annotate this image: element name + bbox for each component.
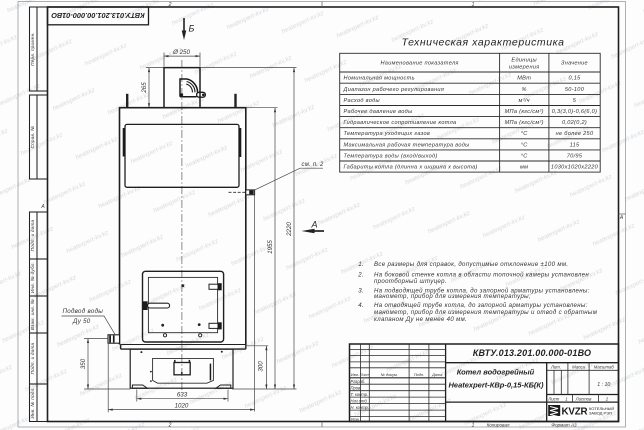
svg-text:Техническая характеристика: Техническая характеристика [402, 37, 565, 49]
svg-text:КВТУ.013.201.00.000-01ВО: КВТУ.013.201.00.000-01ВО [473, 348, 592, 358]
svg-text:Единицы: Единицы [511, 58, 537, 64]
svg-text:Подп. и дата: Подп. и дата [30, 342, 35, 374]
svg-text:Лист: Лист [359, 372, 371, 377]
svg-text:А: А [310, 219, 317, 229]
svg-text:проотборный штуцер.: проотборный штуцер. [374, 278, 447, 285]
svg-text:Подп. и дата: Подп. и дата [30, 219, 35, 251]
svg-text:МПа (кгс/см²): МПа (кгс/см²) [505, 109, 544, 115]
svg-text:Лист: Лист [547, 396, 559, 401]
svg-text:ЗАВОД РЭП: ЗАВОД РЭП [589, 411, 612, 416]
svg-text:МВт: МВт [517, 76, 531, 82]
svg-text:Дата: Дата [431, 372, 443, 377]
svg-text:Изм.: Изм. [351, 372, 359, 377]
svg-text:Расход воды: Расход воды [344, 98, 380, 104]
svg-text:0,3(3,0)-0,6(6,0): 0,3(3,0)-0,6(6,0) [552, 109, 598, 115]
svg-text:50-100: 50-100 [565, 87, 585, 93]
svg-text:633: 633 [177, 392, 188, 399]
svg-text:2220: 2220 [286, 222, 293, 237]
svg-text:Масштаб: Масштаб [594, 364, 615, 369]
svg-text:А: А [40, 204, 45, 210]
svg-text:1: 1 [472, 2, 475, 8]
svg-text:Номинальная мощность: Номинальная мощность [344, 76, 415, 82]
svg-text:Ду 50: Ду 50 [72, 318, 91, 325]
svg-text:Подвод воды: Подвод воды [63, 308, 104, 315]
svg-text:2.: 2. [357, 271, 364, 278]
svg-text:Ø 250: Ø 250 [172, 49, 190, 56]
svg-text:Габариты котла (длинна х ширин: Габариты котла (длинна х ширина х высота… [344, 165, 478, 171]
svg-text:1030х1020х2220: 1030х1020х2220 [551, 165, 599, 171]
svg-text:Значение: Значение [561, 61, 588, 67]
svg-text:Наименование показателя: Наименование показателя [380, 61, 458, 67]
svg-text:Т. контр.: Т. контр. [351, 392, 369, 397]
svg-text:Утв.: Утв. [351, 417, 360, 422]
svg-text:1020: 1020 [175, 402, 189, 409]
svg-text:350: 350 [80, 358, 87, 369]
svg-text:2: 2 [168, 2, 172, 8]
svg-text:°С: °С [521, 153, 529, 159]
svg-text:Подп.: Подп. [414, 372, 424, 377]
svg-text:°С: °С [521, 131, 529, 137]
svg-text:Пров.: Пров. [351, 386, 362, 391]
svg-text:м³/ч: м³/ч [519, 98, 530, 104]
svg-text:Инв. № дубл.: Инв. № дубл. [30, 262, 35, 293]
svg-text:Котел водогрейный: Котел водогрейный [457, 367, 535, 376]
svg-text:Диапазон рабочего регулировани: Диапазон рабочего регулирования [343, 87, 445, 93]
svg-text:Рабочее давление воды: Рабочее давление воды [344, 109, 413, 115]
svg-text:°С: °С [521, 142, 529, 148]
svg-text:Лит.: Лит. [550, 364, 561, 369]
svg-text:Гидравлическое сопротивление к: Гидравлическое сопротивление котла [344, 120, 457, 126]
svg-text:Н. контр.: Н. контр. [351, 405, 369, 410]
svg-text:Температура уходящих газов: Температура уходящих газов [344, 131, 431, 137]
svg-text:А: А [619, 215, 624, 221]
svg-text:не более 250: не более 250 [556, 131, 594, 137]
svg-text:Разраб.: Разраб. [351, 379, 366, 384]
svg-text:0,15: 0,15 [568, 76, 581, 82]
svg-text:1.: 1. [358, 261, 364, 268]
svg-text:Б: Б [189, 24, 195, 34]
svg-text:0,02(0,2): 0,02(0,2) [562, 120, 587, 126]
svg-text:мм: мм [520, 165, 528, 171]
svg-text:измерения: измерения [509, 65, 540, 71]
svg-text:клапаном Ду не менее 40 мм.: клапаном Ду не менее 40 мм. [374, 316, 467, 323]
svg-text:Инв. № подл.: Инв. № подл. [30, 387, 35, 419]
svg-text:МПа (кгс/см²): МПа (кгс/см²) [505, 120, 544, 126]
svg-text:115: 115 [570, 142, 580, 148]
svg-text:Максимальная рабочая температу: Максимальная рабочая температура воды [344, 142, 470, 148]
svg-text:см. п. 2: см. п. 2 [302, 162, 324, 168]
svg-text:Формат А3: Формат А3 [551, 422, 577, 427]
svg-text:3.: 3. [358, 287, 364, 294]
svg-text:%: % [522, 87, 527, 93]
svg-text:4.: 4. [358, 302, 364, 309]
svg-text:300: 300 [258, 361, 265, 372]
svg-text:KVZR: KVZR [562, 407, 588, 418]
svg-text:2: 2 [168, 423, 172, 429]
svg-text:265: 265 [141, 82, 148, 94]
svg-text:Масса: Масса [572, 364, 585, 369]
svg-text:манометр, прибор для измерения: манометр, прибор для измерения температу… [374, 293, 531, 300]
svg-text:Нач.отд.: Нач.отд. [351, 399, 368, 404]
svg-text:1: 1 [472, 423, 475, 429]
svg-text:Справ. №: Справ. № [30, 126, 35, 149]
svg-text:Температура воды (вход/выход): Температура воды (вход/выход) [344, 153, 438, 159]
svg-text:70/95: 70/95 [567, 153, 583, 159]
svg-text:Листов: Листов [575, 396, 592, 401]
svg-text:Все размеры для справок, допус: Все размеры для справок, допустимые откл… [374, 261, 568, 268]
svg-text:5: 5 [573, 98, 577, 104]
svg-text:1 : 10: 1 : 10 [597, 382, 610, 388]
svg-text:Взам. инв. №: Взам. инв. № [30, 299, 35, 330]
svg-text:1955: 1955 [267, 240, 274, 254]
svg-text:Копировал: Копировал [487, 422, 510, 427]
svg-text:КВТУ.013.201.00.000-01ВО: КВТУ.013.201.00.000-01ВО [51, 11, 145, 20]
svg-text:Heatexpert-КВр-0,15-КБ(К): Heatexpert-КВр-0,15-КБ(К) [449, 380, 544, 389]
svg-text:Перв. примен.: Перв. примен. [30, 32, 35, 66]
svg-text:№ докум.: № докум. [381, 372, 398, 377]
